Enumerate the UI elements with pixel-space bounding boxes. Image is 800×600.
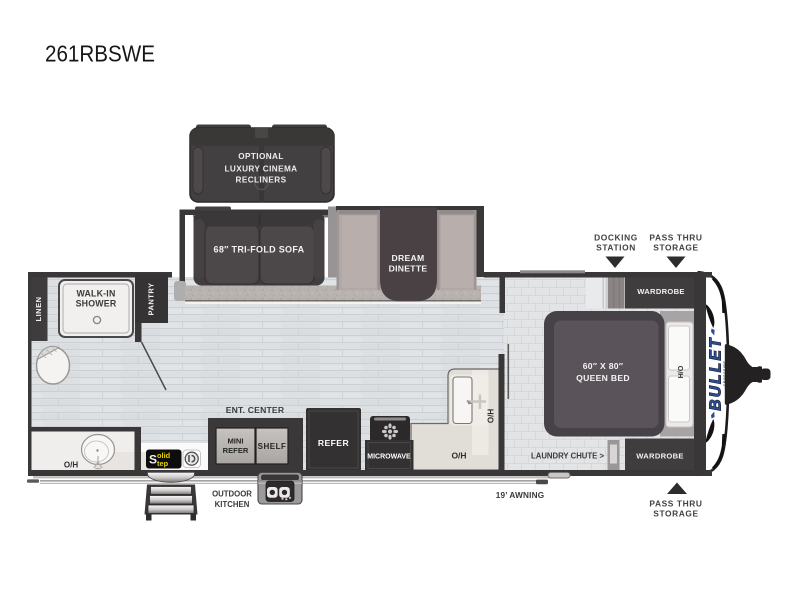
svg-text:DOCKING: DOCKING — [594, 233, 638, 243]
svg-text:MICROWAVE: MICROWAVE — [367, 454, 411, 461]
svg-text:SHOWER: SHOWER — [76, 299, 117, 309]
svg-text:WALK-IN: WALK-IN — [76, 289, 115, 299]
svg-text:OPTIONAL: OPTIONAL — [238, 152, 284, 161]
svg-text:DINETTE: DINETTE — [389, 264, 428, 274]
svg-text:60″ X 80″: 60″ X 80″ — [583, 361, 624, 371]
svg-text:STATION: STATION — [596, 243, 636, 253]
svg-text:REFER: REFER — [318, 438, 350, 448]
svg-text:O/H: O/H — [451, 451, 466, 461]
svg-text:S: S — [149, 453, 157, 467]
svg-text:BULLET: BULLET — [708, 336, 725, 410]
svg-text:68″ TRI-FOLD SOFA: 68″ TRI-FOLD SOFA — [214, 245, 305, 255]
svg-text:RECLINERS: RECLINERS — [236, 176, 287, 185]
svg-text:REFER: REFER — [223, 446, 249, 455]
svg-text:KITCHEN: KITCHEN — [215, 500, 250, 509]
svg-text:QUEEN BED: QUEEN BED — [576, 373, 630, 383]
svg-text:PASS THRU: PASS THRU — [649, 233, 702, 243]
svg-text:DREAM: DREAM — [391, 253, 424, 263]
svg-text:SHELF: SHELF — [258, 442, 287, 451]
svg-text:OUTDOOR: OUTDOOR — [212, 490, 252, 499]
svg-text:261RBSWE: 261RBSWE — [45, 41, 155, 67]
svg-text:19’ AWNING: 19’ AWNING — [496, 491, 545, 500]
svg-text:STORAGE: STORAGE — [653, 509, 698, 519]
svg-text:LUXURY CINEMA: LUXURY CINEMA — [225, 165, 298, 174]
svg-text:WARDROBE: WARDROBE — [636, 452, 684, 461]
svg-text:STORAGE: STORAGE — [653, 243, 698, 253]
svg-text:WARDROBE: WARDROBE — [637, 287, 685, 296]
svg-text:O/H: O/H — [487, 409, 496, 423]
svg-text:MINI: MINI — [227, 437, 243, 446]
svg-text:ENT. CENTER: ENT. CENTER — [226, 405, 285, 415]
svg-text:PANTRY: PANTRY — [147, 283, 156, 316]
svg-text:O/H: O/H — [64, 461, 78, 470]
svg-text:H/O: H/O — [676, 365, 685, 378]
svg-text:LAUNDRY CHUTE >: LAUNDRY CHUTE > — [531, 451, 604, 461]
svg-text:tep: tep — [157, 459, 169, 468]
svg-text:PASS THRU: PASS THRU — [649, 499, 702, 509]
svg-text:LINEN: LINEN — [34, 297, 43, 322]
